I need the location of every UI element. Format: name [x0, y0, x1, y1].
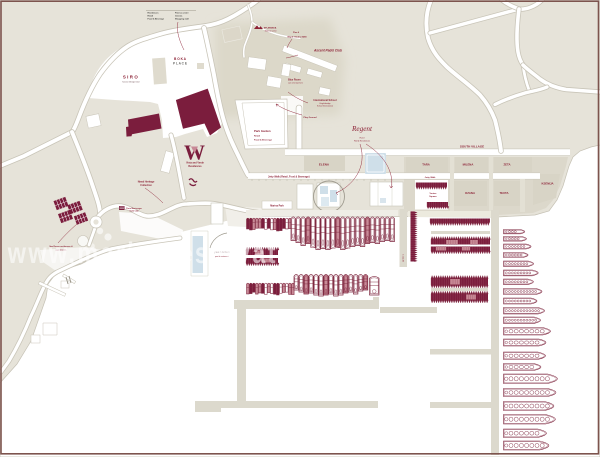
svg-text:B O K A: B O K A: [174, 57, 187, 61]
svg-text:Fitness centre: Fitness centre: [175, 12, 189, 15]
svg-text:Maple Studio 8280: Maple Studio 8280: [287, 36, 307, 39]
svg-text:School International: School International: [317, 105, 333, 108]
svg-text:Food & Beverage: Food & Beverage: [148, 19, 165, 21]
svg-text:Retail: Retail: [148, 15, 154, 18]
svg-text:Collection: Collection: [140, 184, 152, 187]
svg-text:Residences: Residences: [188, 165, 202, 168]
svg-text:Retail: Retail: [254, 135, 260, 138]
svg-text:ELENA: ELENA: [319, 163, 330, 167]
svg-text:Shopping mall: Shopping mall: [175, 19, 189, 21]
svg-text:SPLENDIDA: SPLENDIDA: [264, 27, 277, 30]
svg-text:International School: International School: [314, 99, 337, 102]
svg-text:Jetty Walk (Retail, Food & Bev: Jetty Walk (Retail, Food & Beverage): [268, 176, 310, 179]
svg-text:www.marinareservation.com: www.marinareservation.com: [7, 236, 384, 269]
svg-text:JETTY 5: JETTY 5: [403, 253, 405, 262]
svg-text:TEUTA: TEUTA: [499, 191, 508, 195]
svg-text:Cinema: Cinema: [175, 16, 183, 18]
svg-text:Residences: Residences: [148, 13, 160, 15]
svg-text:Park Garden: Park Garden: [254, 129, 271, 133]
svg-text:Marina Park: Marina Park: [270, 205, 284, 208]
svg-text:Blue Room: Blue Room: [288, 79, 301, 82]
svg-text:Kerzner lifestyle hotel: Kerzner lifestyle hotel: [122, 81, 140, 84]
svg-text:Regent: Regent: [351, 125, 373, 133]
svg-text:SIRO: SIRO: [123, 75, 139, 80]
svg-text:TARA: TARA: [422, 163, 430, 167]
svg-text:Live entertainment: Live entertainment: [288, 82, 303, 85]
svg-text:Plav &: Plav &: [293, 32, 300, 34]
svg-text:Yacht Club: Yacht Club: [129, 210, 139, 213]
svg-text:Food & Beverage: Food & Beverage: [254, 140, 273, 142]
svg-text:Hotel: Hotel: [360, 137, 365, 140]
svg-text:KSENIJA: KSENIJA: [541, 182, 553, 186]
svg-text:Hall & Residences: Hall & Residences: [354, 141, 370, 143]
svg-text:Square: Square: [429, 196, 437, 198]
svg-text:SOUTH VILLAGE: SOUTH VILLAGE: [460, 145, 484, 149]
svg-text:Venice: Venice: [430, 193, 438, 195]
svg-text:Jetty Walk: Jetty Walk: [425, 176, 437, 179]
svg-text:Vista and Verde: Vista and Verde: [186, 161, 204, 164]
svg-text:ZETA: ZETA: [503, 163, 510, 167]
svg-text:P L A C E: P L A C E: [173, 62, 187, 66]
svg-text:OZANA: OZANA: [465, 191, 475, 195]
svg-text:Ascent Padel Club: Ascent Padel Club: [313, 49, 342, 53]
svg-text:Medical Center: Medical Center: [265, 29, 277, 32]
svg-text:MILENA: MILENA: [463, 163, 474, 167]
svg-text:Play Ground: Play Ground: [303, 117, 317, 119]
